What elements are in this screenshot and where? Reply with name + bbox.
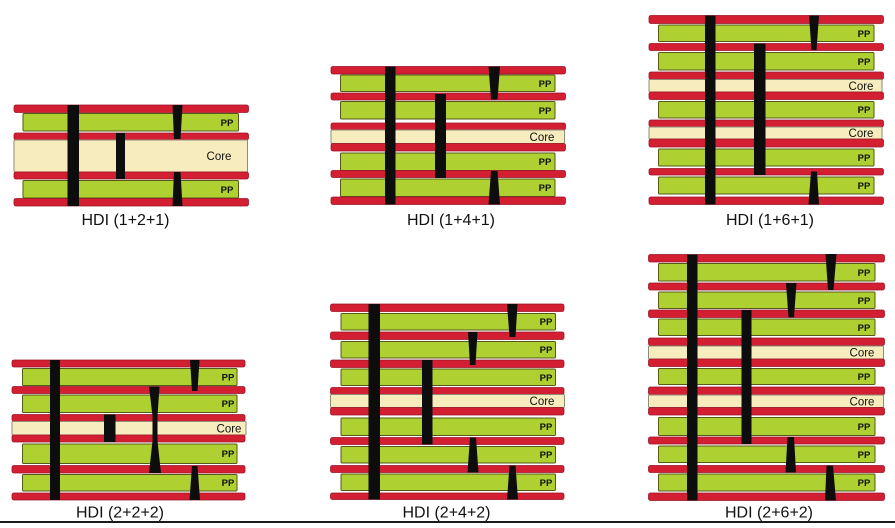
- svg-text:HDI (2+6+2): HDI (2+6+2): [725, 505, 813, 522]
- svg-text:HDI (1+4+1): HDI (1+4+1): [407, 212, 495, 229]
- svg-text:PP: PP: [858, 296, 871, 307]
- svg-text:PP: PP: [221, 118, 234, 129]
- svg-text:PP: PP: [222, 449, 235, 460]
- svg-text:PP: PP: [858, 29, 871, 40]
- svg-text:PP: PP: [858, 105, 871, 116]
- svg-text:Core: Core: [849, 128, 874, 140]
- svg-text:Core: Core: [217, 423, 242, 435]
- svg-text:PP: PP: [858, 153, 871, 164]
- svg-text:PP: PP: [540, 345, 553, 356]
- svg-text:PP: PP: [222, 399, 235, 410]
- svg-text:PP: PP: [858, 478, 871, 489]
- svg-text:PP: PP: [540, 450, 553, 461]
- svg-text:PP: PP: [540, 373, 553, 384]
- svg-text:HDI (1+2+1): HDI (1+2+1): [81, 212, 169, 229]
- svg-text:PP: PP: [858, 450, 871, 461]
- svg-text:PP: PP: [858, 268, 871, 279]
- svg-text:PP: PP: [858, 422, 871, 433]
- svg-text:Core: Core: [850, 348, 875, 360]
- svg-text:PP: PP: [222, 373, 235, 384]
- svg-text:PP: PP: [540, 422, 553, 433]
- svg-text:PP: PP: [540, 317, 553, 328]
- svg-text:PP: PP: [222, 478, 235, 489]
- svg-text:Core: Core: [849, 81, 874, 93]
- svg-text:PP: PP: [539, 106, 552, 117]
- svg-text:PP: PP: [539, 183, 552, 194]
- svg-text:PP: PP: [540, 478, 553, 489]
- svg-text:PP: PP: [858, 372, 871, 383]
- svg-text:PP: PP: [539, 79, 552, 90]
- svg-text:PP: PP: [221, 185, 234, 196]
- svg-text:Core: Core: [850, 396, 875, 408]
- svg-text:HDI (2+2+2): HDI (2+2+2): [76, 505, 164, 522]
- svg-text:PP: PP: [858, 323, 871, 334]
- svg-text:Core: Core: [207, 151, 232, 163]
- svg-text:HDI (1+6+1): HDI (1+6+1): [726, 212, 814, 229]
- svg-text:PP: PP: [858, 181, 871, 192]
- svg-text:Core: Core: [530, 132, 555, 144]
- svg-text:PP: PP: [539, 157, 552, 168]
- svg-text:Core: Core: [530, 396, 555, 408]
- svg-text:HDI (2+4+2): HDI (2+4+2): [402, 505, 490, 522]
- svg-text:PP: PP: [858, 57, 871, 68]
